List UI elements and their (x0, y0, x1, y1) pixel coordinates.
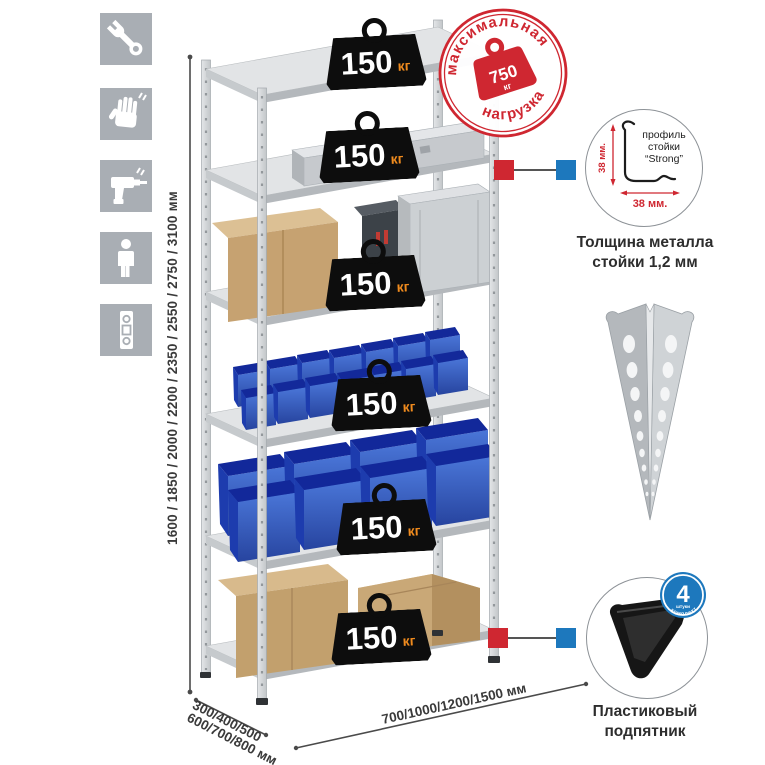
callout-marker-blue-bottom (556, 628, 576, 648)
shelf-load-badge-1: 150кг (323, 15, 427, 90)
load-unit: кг (397, 57, 411, 74)
height-dimension-line (188, 55, 193, 695)
foot-caption: Пластиковый подпятник (550, 702, 740, 742)
load-value: 150 (350, 511, 403, 545)
shelf-load-badge-2: 150кг (316, 108, 420, 183)
load-unit: кг (390, 150, 404, 167)
profile-caption-line1: Толщина металла (550, 233, 740, 253)
load-value: 150 (339, 267, 392, 301)
foot-caption-line1: Пластиковый (550, 702, 740, 722)
load-value: 150 (333, 139, 386, 173)
badge-small-text: штуки (676, 604, 690, 609)
load-value: 150 (345, 387, 398, 421)
load-value: 150 (345, 621, 398, 655)
load-unit: кг (396, 278, 410, 295)
profile-dim-horizontal-label: 38 мм. (633, 198, 668, 210)
upright-post-image (588, 296, 712, 536)
load-unit: кг (407, 522, 421, 539)
width-label: 700/1000/1200/1500 мм (380, 680, 527, 727)
profile-label: профиль стойки “Strong” (642, 129, 686, 165)
profile-label-line1: профиль (642, 129, 686, 141)
profile-caption-line2: стойки 1,2 мм (550, 253, 740, 273)
foot-caption-line2: подпятник (550, 722, 740, 742)
callout-marker-red-bottom (488, 628, 508, 648)
load-value: 150 (340, 46, 393, 80)
profile-label-line2: стойки (648, 141, 680, 153)
depth-dimension: 300/400/500 600/700/800 мм (185, 697, 280, 765)
cardboard-box-mid (212, 208, 338, 322)
cardboard-box-bottom-left (218, 564, 348, 678)
profile-caption: Толщина металла стойки 1,2 мм (550, 233, 740, 273)
included-count-badge: 4 штуки в комплекте (659, 571, 707, 619)
load-unit: кг (402, 632, 416, 649)
width-dimension: 700/1000/1200/1500 мм (294, 680, 588, 750)
callout-bottom (488, 628, 576, 648)
callout-top (494, 160, 576, 180)
shelf-load-badge-3: 150кг (322, 236, 426, 311)
profile-dim-vertical-label: 38 мм. (597, 143, 608, 173)
shelf-load-badge-5: 150кг (333, 480, 437, 555)
callout-marker-red-top (494, 160, 514, 180)
profile-label-line3: “Strong” (645, 153, 683, 165)
shelf-load-badge-6: 150кг (328, 590, 432, 665)
profile-detail-circle: 38 мм. 38 мм. профиль стойки “Strong” (585, 109, 703, 227)
shelf-load-badge-4: 150кг (328, 356, 432, 431)
load-unit: кг (402, 398, 416, 415)
callout-marker-blue-top (556, 160, 576, 180)
